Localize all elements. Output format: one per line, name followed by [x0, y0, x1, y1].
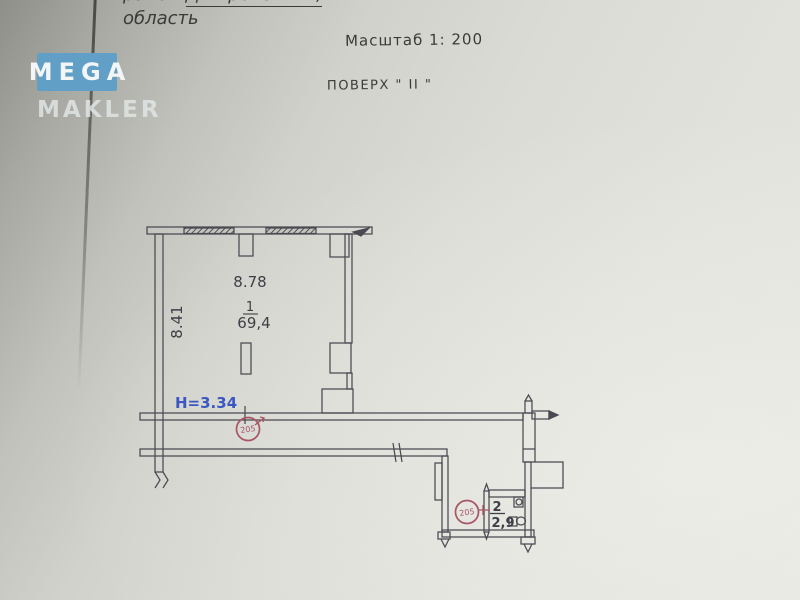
stamp-1-number: 205	[240, 424, 256, 435]
room1-top-wall	[147, 227, 372, 257]
room1-shaft	[241, 343, 251, 374]
right-wall-protrusion	[531, 462, 563, 488]
corner-arrow-mark	[353, 228, 369, 236]
wall-break-mark-right	[524, 544, 532, 552]
room1-area: 69,4	[237, 314, 270, 332]
room1-width-dim: 8.78	[233, 273, 266, 291]
corridor-junction-column	[322, 389, 353, 413]
room1-number: 1	[246, 300, 254, 315]
survey-tick-2	[393, 443, 396, 462]
floor-plan-drawing: 205 205 8.78 8.41 1 69,4 H=3.34 2 2,9	[0, 0, 800, 600]
room1-left-wall	[155, 234, 168, 488]
toilet-bowl	[517, 517, 526, 525]
window-1	[184, 228, 234, 234]
room1-depth-dim: 8.41	[168, 305, 186, 338]
room2-area: 2,9	[491, 516, 514, 531]
ceiling-height-note: H=3.34	[175, 394, 237, 412]
door-jamb-block	[330, 343, 351, 373]
top-wall-pillar	[239, 234, 253, 256]
wall-break-mark	[155, 472, 160, 488]
sink-bowl	[516, 499, 522, 505]
wall-notch	[435, 463, 442, 500]
plan-labels: 8.78 8.41 1 69,4 H=3.34 2 2,9	[168, 273, 515, 531]
room2-number: 2	[492, 500, 501, 515]
corridor-walls	[140, 406, 523, 462]
wall-end-point	[525, 395, 532, 401]
room1-right-wall	[322, 234, 353, 413]
room2-partition	[484, 491, 489, 532]
stamp-2: 205	[456, 501, 491, 524]
right-wall-structure	[521, 395, 563, 552]
top-right-column	[330, 234, 349, 257]
window-2	[266, 228, 316, 234]
wall-end-arrow	[549, 411, 558, 419]
stamp-2-number: 205	[459, 507, 475, 518]
